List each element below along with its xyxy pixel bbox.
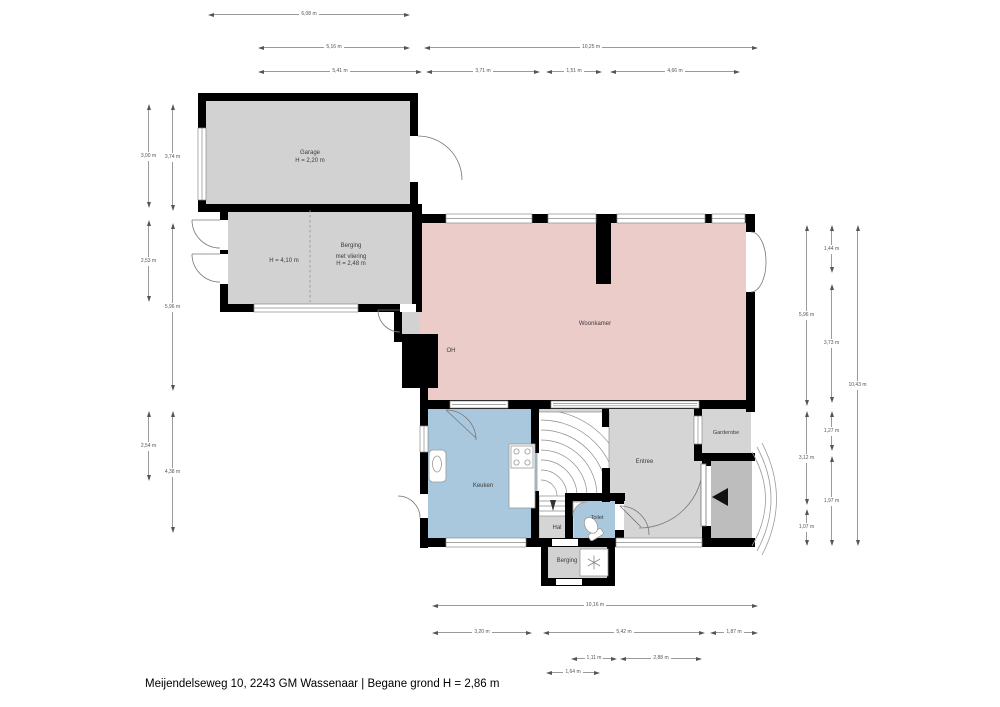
garderobe-label: Garderobe bbox=[700, 430, 752, 437]
dim-right-5: 1,27 m bbox=[828, 411, 835, 451]
garage-door-swing bbox=[418, 136, 462, 180]
dimension-label: 3,71 m bbox=[473, 69, 492, 74]
dimension-label: 1,44 m bbox=[824, 245, 839, 254]
dim-bottom-0: 10,16 m bbox=[432, 601, 758, 610]
entree-label: Entree bbox=[612, 459, 677, 467]
floorplan-page: Garage H = 2,20 m H = 4,10 m Berging met… bbox=[0, 0, 1000, 707]
porch-floor bbox=[708, 458, 752, 544]
dimension-label: 3,73 m bbox=[824, 339, 839, 348]
dim-right-7: 10,43 m bbox=[854, 225, 861, 546]
dim-bottom-4: 1,11 m bbox=[571, 654, 617, 663]
dimension-label: 5,96 m bbox=[165, 303, 180, 312]
dimension-label: 1,27 m bbox=[824, 427, 839, 436]
annex-height-label: H = 4,10 m bbox=[252, 258, 316, 266]
berging-back-label: Berging bbox=[544, 558, 590, 566]
dimension-label: 1,11 m bbox=[585, 656, 604, 661]
dimension-label: 2,88 m bbox=[651, 656, 670, 661]
fireplace-label: OH bbox=[440, 348, 462, 356]
dimension-label: 6,08 m bbox=[299, 12, 318, 17]
dimension-label: 5,16 m bbox=[324, 45, 343, 50]
woonkamer-label: Woonkamer bbox=[555, 321, 635, 329]
dim-left-4: 5,96 m bbox=[169, 223, 176, 391]
dim-right-4: 3,73 m bbox=[828, 284, 835, 403]
dim-left-0: 3,00 m bbox=[145, 104, 152, 208]
dim-top-1: 5,16 m bbox=[258, 43, 410, 52]
dimension-label: 10,16 m bbox=[584, 603, 606, 608]
dimension-label: 3,20 m bbox=[472, 630, 491, 635]
dim-right-1: 3,12 m bbox=[803, 411, 810, 505]
dim-right-3: 1,44 m bbox=[828, 225, 835, 273]
dimension-label: 1,87 m bbox=[724, 630, 743, 635]
dimension-label: 3,74 m bbox=[165, 153, 180, 162]
front-door-leaf bbox=[701, 464, 706, 526]
dimension-label: 5,96 m bbox=[799, 311, 814, 320]
dimension-label: 5,42 m bbox=[614, 630, 633, 635]
dim-bottom-5: 2,88 m bbox=[620, 654, 702, 663]
woonkamer-floor bbox=[420, 222, 751, 406]
dimension-label: 3,00 m bbox=[141, 152, 156, 161]
dimension-label: 1,51 m bbox=[564, 69, 583, 74]
dimension-label: 3,12 m bbox=[799, 454, 814, 463]
hal-label: Hal bbox=[542, 525, 572, 533]
keuken-label: Keuken bbox=[453, 483, 513, 491]
dimension-label: 1,07 m bbox=[799, 523, 814, 532]
dimension-label: 5,41 m bbox=[330, 69, 349, 74]
garage-label: Garage H = 2,20 m bbox=[275, 150, 345, 165]
room-fills bbox=[202, 97, 752, 584]
dim-top-4: 3,71 m bbox=[426, 67, 540, 76]
dim-left-1: 2,53 m bbox=[145, 220, 152, 302]
dimension-label: 1,64 m bbox=[563, 670, 582, 675]
dimension-label: 1,97 m bbox=[824, 497, 839, 506]
dimension-label: 4,38 m bbox=[165, 468, 180, 477]
dim-left-5: 4,38 m bbox=[169, 411, 176, 533]
porch-steps bbox=[752, 443, 777, 555]
dim-top-5: 1,51 m bbox=[546, 67, 602, 76]
dim-top-3: 5,41 m bbox=[258, 67, 422, 76]
chimney-stub bbox=[596, 222, 611, 284]
dim-bottom-3: 1,87 m bbox=[710, 628, 758, 637]
dim-right-0: 5,96 m bbox=[803, 225, 810, 406]
dim-top-0: 6,08 m bbox=[208, 10, 410, 19]
dimension-label: 2,54 m bbox=[141, 442, 156, 451]
dimension-label: 10,43 m bbox=[848, 381, 866, 390]
kitchen-sink bbox=[429, 450, 446, 482]
dimension-label: 2,53 m bbox=[141, 257, 156, 266]
dimension-label: 4,66 m bbox=[665, 69, 684, 74]
toilet-label: Toilet bbox=[578, 515, 616, 522]
dim-bottom-1: 3,20 m bbox=[432, 628, 532, 637]
berging-attic-label: Berging met vliering H = 2,48 m bbox=[315, 243, 387, 269]
fireplace-block bbox=[402, 338, 438, 388]
dim-left-3: 3,74 m bbox=[169, 104, 176, 211]
dim-bottom-2: 5,42 m bbox=[543, 628, 705, 637]
plan-title: Meijendelseweg 10, 2243 GM Wassenaar | B… bbox=[145, 678, 499, 690]
dim-left-2: 2,54 m bbox=[145, 411, 152, 481]
dim-right-2: 1,07 m bbox=[803, 509, 810, 546]
dim-top-2: 10,25 m bbox=[424, 43, 758, 52]
dimension-label: 10,25 m bbox=[580, 45, 602, 50]
cooktop bbox=[511, 446, 533, 468]
dim-bottom-6: 1,64 m bbox=[546, 668, 600, 677]
dim-top-6: 4,66 m bbox=[610, 67, 740, 76]
dim-right-6: 1,97 m bbox=[828, 456, 835, 546]
